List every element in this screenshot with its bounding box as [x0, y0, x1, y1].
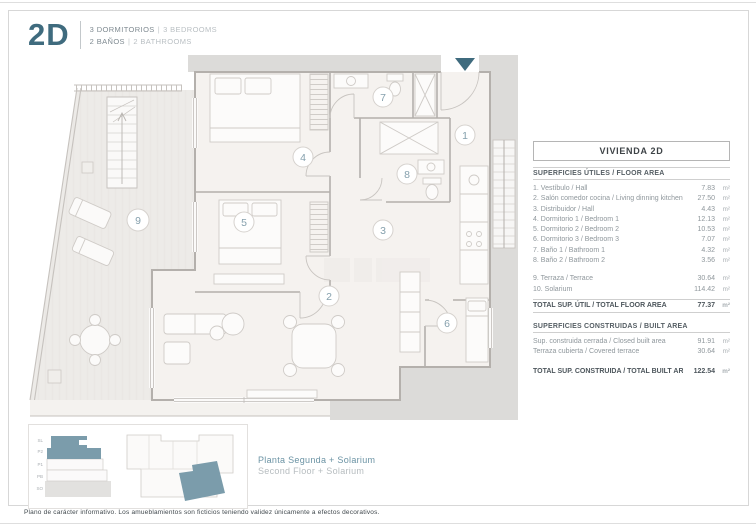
row-value: 27.50: [683, 194, 715, 204]
bedrooms-line: 3 DORMITORIOS|3 BEDROOMS: [90, 25, 217, 34]
table-row: 9. Terraza / Terrace30.64m²: [533, 274, 730, 284]
row-unit: m²: [715, 246, 730, 256]
row-value: 30.64: [683, 274, 715, 284]
kitchen-counter: [460, 166, 488, 284]
row-unit: m²: [715, 194, 730, 204]
row-value: 10.53: [683, 225, 715, 235]
header-divider: [80, 21, 81, 49]
bedrooms-es: 3 DORMITORIOS: [90, 25, 155, 34]
room-label-9: 9: [127, 209, 149, 231]
wardrobe-room4: [310, 74, 328, 130]
table-row: 5. Dormitorio 2 / Bedroom 210.53m²: [533, 225, 730, 235]
row-unit: m²: [715, 347, 730, 357]
row-unit: m²: [715, 274, 730, 284]
svg-text:7: 7: [380, 92, 386, 104]
room-label-2: 2: [319, 286, 339, 306]
plan-sheet: 2D 3 DORMITORIOS|3 BEDROOMS 2 BAÑOS|2 BA…: [0, 0, 756, 528]
bathrooms-line: 2 BAÑOS|2 BATHROOMS: [90, 37, 217, 46]
bathrooms-es: 2 BAÑOS: [90, 37, 125, 46]
floor-label: P1: [37, 462, 43, 467]
row-unit: m²: [715, 285, 730, 295]
row-value: 3.56: [683, 256, 715, 266]
location-key: SL P2 P1 PB SO: [28, 424, 248, 509]
floor-label: SO: [36, 486, 43, 491]
bed-room6: [466, 298, 488, 362]
total-floor-area-row: TOTAL SUP. ÚTIL / TOTAL FLOOR AREA77.37m…: [533, 300, 730, 312]
header: 2D 3 DORMITORIOS|3 BEDROOMS 2 BAÑOS|2 BA…: [28, 18, 217, 52]
room-label-4: 4: [293, 147, 313, 167]
room-label-6: 6: [437, 313, 457, 333]
room-label-8: 8: [397, 164, 417, 184]
floor-area-section-title: SUPERFICIES ÚTILES / FLOOR AREA: [533, 168, 730, 179]
table-row: 3. Distribuidor / Hall4.43m²: [533, 205, 730, 215]
svg-text:1: 1: [462, 130, 468, 142]
row-value: 12.13: [683, 215, 715, 225]
table-row: 2. Salón comedor cocina / Living dinning…: [533, 194, 730, 204]
room-label-3: 3: [373, 220, 393, 240]
row-unit: m²: [715, 337, 730, 347]
bottom-rule: [0, 523, 756, 524]
table-row: 1. Vestíbulo / Hall7.83m²: [533, 184, 730, 194]
bed-room5: [219, 200, 281, 264]
svg-text:9: 9: [135, 215, 141, 227]
floor-plan: 1 2 3 4 5 6 7 8 9: [14, 52, 524, 424]
side-table: [210, 326, 224, 340]
location-key-drawing: SL P2 P1 PB SO: [29, 425, 247, 508]
floor-label: P2: [37, 449, 43, 454]
row-unit: m²: [715, 225, 730, 235]
row-label: 8. Baño 2 / Bathroom 2: [533, 256, 683, 266]
row-label: 2. Salón comedor cocina / Living dinning…: [533, 194, 683, 204]
kitchen-island: [400, 272, 420, 352]
caption-en: Second Floor + Solarium: [258, 466, 375, 477]
row-value: 114.42: [683, 285, 715, 295]
row-label: 9. Terraza / Terrace: [533, 274, 683, 284]
table-row: 6. Dormitorio 3 / Bedroom 37.07m²: [533, 235, 730, 245]
svg-text:3: 3: [380, 225, 386, 237]
row-label: Terraza cubierta / Covered terrace: [533, 347, 683, 357]
row-label: Sup. construida cerrada / Closed built a…: [533, 337, 683, 347]
row-label: 1. Vestíbulo / Hall: [533, 184, 683, 194]
floor-label: PB: [37, 474, 43, 479]
floor-caption: Planta Segunda + Solarium Second Floor +…: [258, 455, 375, 477]
table-title: VIVIENDA 2D: [533, 141, 730, 161]
area-table: VIVIENDA 2D SUPERFICIES ÚTILES / FLOOR A…: [533, 141, 730, 378]
row-label: 10. Solarium: [533, 285, 683, 295]
entrance-arrow-icon: [455, 58, 475, 71]
room-label-5: 5: [234, 212, 254, 232]
row-value: 4.32: [683, 246, 715, 256]
row-value: 7.83: [683, 184, 715, 194]
table-row: Sup. construida cerrada / Closed built a…: [533, 337, 730, 347]
row-value: 30.64: [683, 347, 715, 357]
table-row: 4. Dormitorio 1 / Bedroom 112.13m²: [533, 215, 730, 225]
disclaimer-text: Plano de carácter informativo. Los amueb…: [24, 509, 380, 516]
row-value: 7.07: [683, 235, 715, 245]
tv-unit: [247, 390, 317, 398]
row-value: 91.91: [683, 337, 715, 347]
bedrooms-en: 3 BEDROOMS: [163, 25, 217, 34]
svg-text:5: 5: [241, 217, 247, 229]
wardrobe-room5: [310, 202, 328, 252]
bed-room4: [210, 74, 300, 142]
building-elevation: SL P2 P1 PB SO: [36, 436, 111, 497]
svg-text:6: 6: [444, 318, 450, 330]
hall-closet: [415, 74, 435, 116]
total-built-area-row: TOTAL SUP. CONSTRUIDA / TOTAL BUILT AREA…: [533, 366, 730, 378]
top-rule: [0, 2, 756, 3]
room-label-1: 1: [455, 125, 475, 145]
svg-text:2: 2: [326, 291, 332, 303]
floor-label: SL: [37, 438, 43, 443]
caption-es: Planta Segunda + Solarium: [258, 455, 375, 466]
terrace-stairs: [107, 97, 137, 188]
row-value: 4.43: [683, 205, 715, 215]
row-unit: m²: [715, 215, 730, 225]
building-plan-key: [127, 435, 233, 501]
header-specs: 3 DORMITORIOS|3 BEDROOMS 2 BAÑOS|2 BATHR…: [90, 25, 217, 46]
coffee-table: [222, 313, 244, 335]
svg-text:4: 4: [300, 152, 306, 164]
unit-code: 2D: [28, 18, 70, 52]
room-label-7: 7: [373, 87, 393, 107]
table-row: 10. Solarium114.42m²: [533, 285, 730, 295]
built-area-section-title: SUPERFICIES CONSTRUIDAS / BUILT AREA: [533, 321, 730, 332]
row-label: 3. Distribuidor / Hall: [533, 205, 683, 215]
row-label: 4. Dormitorio 1 / Bedroom 1: [533, 215, 683, 225]
row-unit: m²: [715, 256, 730, 266]
row-label: 7. Baño 1 / Bathroom 1: [533, 246, 683, 256]
row-label: 6. Dormitorio 3 / Bedroom 3: [533, 235, 683, 245]
table-row: 8. Baño 2 / Bathroom 23.56m²: [533, 256, 730, 266]
sideboard-room5: [214, 274, 284, 284]
row-unit: m²: [715, 235, 730, 245]
row-unit: m²: [715, 205, 730, 215]
bathrooms-en: 2 BATHROOMS: [133, 37, 191, 46]
row-unit: m²: [715, 184, 730, 194]
terrace-fence: [74, 85, 182, 91]
table-row: Terraza cubierta / Covered terrace30.64m…: [533, 347, 730, 357]
dining-table-set: [284, 316, 345, 377]
svg-text:8: 8: [404, 169, 410, 181]
table-row: 7. Baño 1 / Bathroom 14.32m²: [533, 246, 730, 256]
separator: |: [155, 25, 163, 34]
row-label: 5. Dormitorio 2 / Bedroom 2: [533, 225, 683, 235]
communal-stairs: [493, 140, 515, 248]
